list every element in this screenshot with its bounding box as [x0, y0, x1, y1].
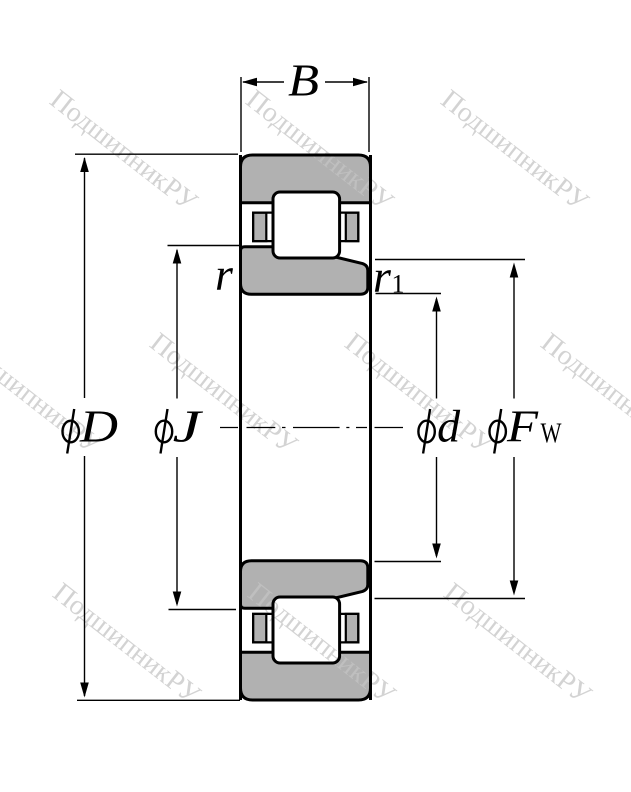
svg-text:1: 1	[392, 270, 405, 299]
svg-text:d: d	[437, 401, 461, 452]
svg-text:r: r	[215, 249, 234, 300]
svg-text:W: W	[541, 418, 562, 450]
svg-text:B: B	[288, 55, 319, 106]
svg-text:F: F	[506, 401, 539, 452]
svg-text:J: J	[173, 401, 205, 452]
svg-text:D: D	[79, 401, 118, 452]
svg-text:r: r	[373, 251, 392, 302]
